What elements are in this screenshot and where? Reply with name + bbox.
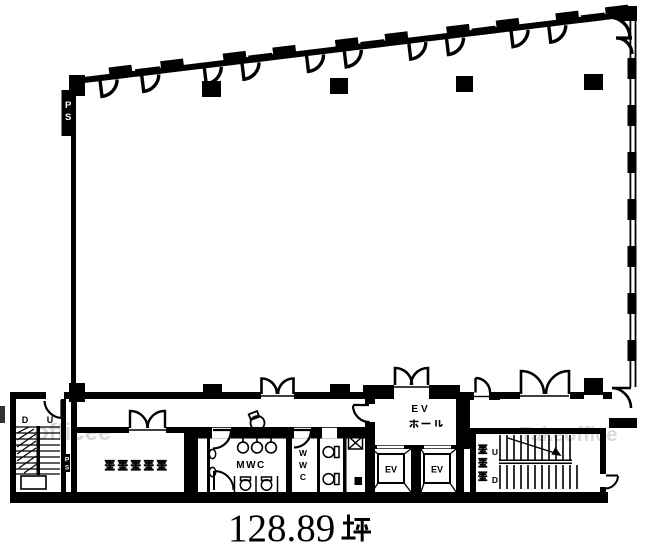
svg-text:EV: EV [385,465,397,475]
svg-text:W: W [299,460,308,470]
svg-text:C: C [300,472,306,482]
svg-text:U: U [47,415,54,425]
svg-text:P: P [65,100,72,111]
svg-text:S: S [65,465,70,472]
svg-text:W: W [299,448,308,458]
svg-text:128.89: 128.89 [228,507,335,550]
svg-text:EV: EV [411,404,430,415]
svg-text:D: D [492,475,498,485]
svg-text:D: D [22,415,29,425]
svg-text:U: U [492,447,498,457]
svg-text:S: S [65,112,71,123]
svg-text:EV: EV [431,465,443,475]
svg-text:P: P [65,457,70,464]
svg-text:MWC: MWC [236,460,266,471]
